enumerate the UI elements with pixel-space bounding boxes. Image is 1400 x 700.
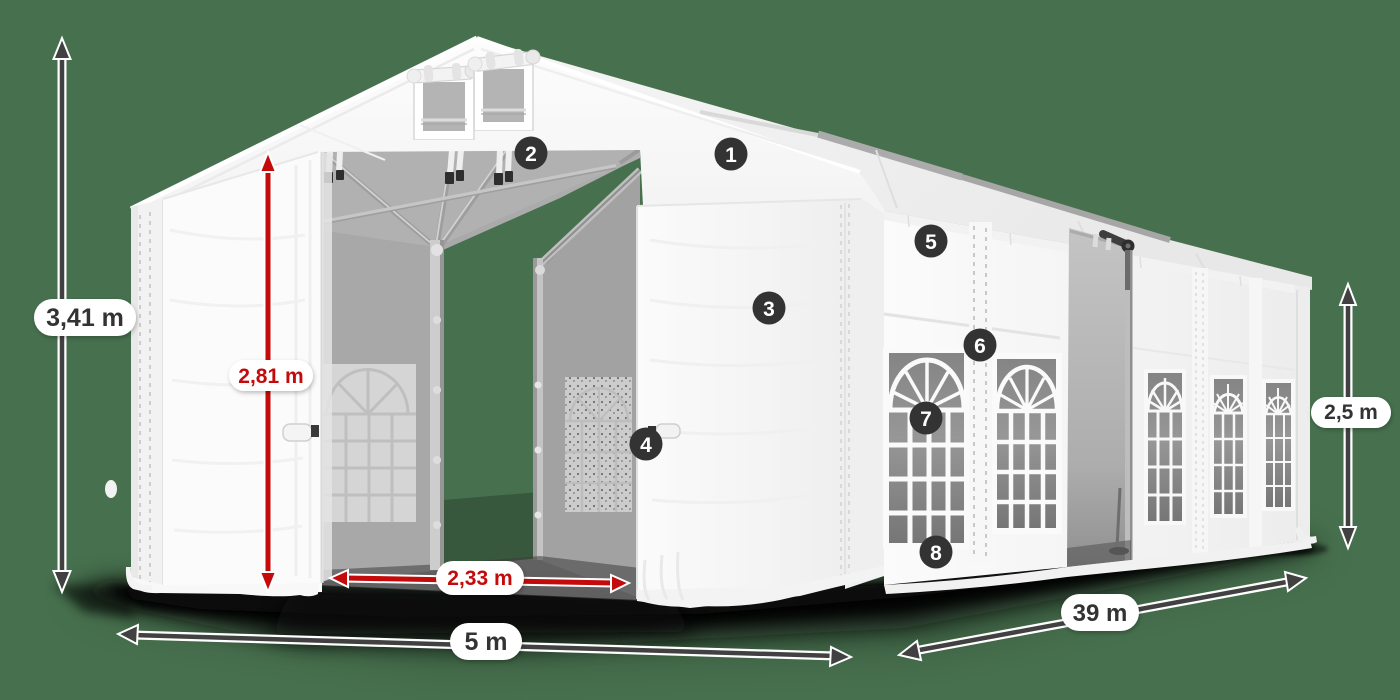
- svg-text:2,33 m: 2,33 m: [447, 567, 512, 590]
- svg-text:6: 6: [974, 335, 986, 358]
- svg-text:7: 7: [920, 408, 932, 431]
- svg-text:3: 3: [763, 298, 775, 321]
- svg-text:5: 5: [925, 231, 937, 254]
- svg-text:3,41 m: 3,41 m: [46, 304, 124, 332]
- svg-text:2: 2: [525, 143, 537, 166]
- svg-text:8: 8: [930, 542, 942, 565]
- svg-text:5 m: 5 m: [464, 628, 507, 656]
- svg-text:2,81 m: 2,81 m: [238, 365, 303, 388]
- svg-text:2,5 m: 2,5 m: [1324, 401, 1378, 424]
- svg-text:4: 4: [640, 434, 652, 457]
- svg-text:1: 1: [725, 144, 737, 167]
- svg-text:39 m: 39 m: [1073, 600, 1128, 627]
